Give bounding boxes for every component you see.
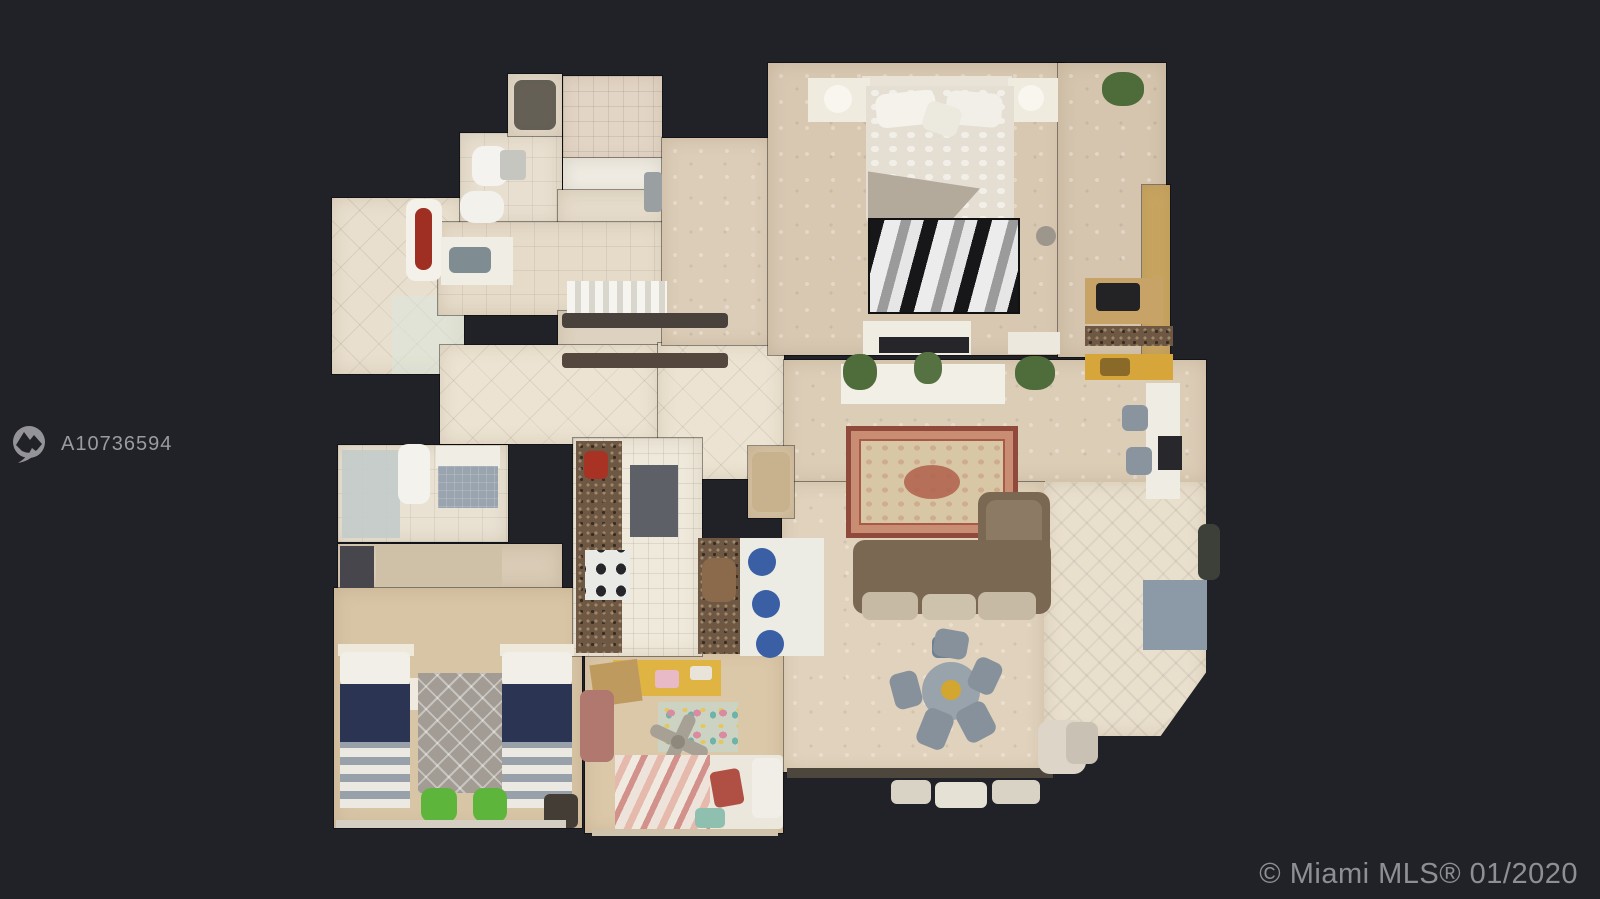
- entry-plant-1: [843, 354, 877, 390]
- kids2-pillow-white: [752, 758, 782, 818]
- kids2-pillow-red: [709, 768, 745, 809]
- kids-green-chair-2: [473, 788, 507, 822]
- office-chair-2: [1126, 447, 1152, 475]
- listing-id-text: A10736594: [61, 433, 172, 456]
- china-dish-2: [752, 590, 780, 618]
- kids2-pillow-teal: [695, 808, 725, 828]
- kids-trellis-rug: [418, 673, 502, 793]
- nook-items: [752, 452, 790, 512]
- ceiling-fan-hub: [671, 735, 685, 749]
- bath2-mat: [438, 466, 498, 508]
- decor-stone: [1036, 226, 1056, 246]
- closet-clothes-bottom: [562, 353, 728, 368]
- mirror-dark-blob: [514, 80, 556, 130]
- master-dresser: [1008, 332, 1060, 354]
- entry-plant-2: [914, 352, 942, 384]
- bathtub-red-towel: [415, 208, 432, 270]
- bidet: [460, 191, 504, 223]
- bath2-shower-glass: [342, 450, 400, 538]
- master-lamp-left: [824, 85, 852, 113]
- bath2-vanity: [436, 446, 500, 468]
- mls-logo-icon: [10, 424, 48, 464]
- watermark: A10736594: [10, 424, 172, 464]
- balcony-item-3: [992, 780, 1040, 804]
- hall2-dark-dresser: [340, 546, 374, 588]
- kids-bed-right-pillow: [502, 652, 572, 686]
- closet-striped-mat: [567, 281, 667, 313]
- copyright-text: © Miami MLS® 01/2020: [1259, 858, 1578, 891]
- sofa-cushion-1: [862, 592, 918, 620]
- kitchen-stool: [702, 558, 736, 602]
- kitchen-mat: [630, 465, 678, 537]
- vanity-items: [449, 247, 491, 273]
- office-chair-1: [1122, 405, 1148, 431]
- floorplan-dollhouse-view: [0, 0, 1600, 899]
- china-dish-1: [748, 548, 776, 576]
- kids-bed-left-stripes: [340, 742, 410, 808]
- china-dish-3: [756, 630, 784, 658]
- master-tv: [879, 337, 969, 353]
- kids2-desk-paper: [655, 670, 679, 688]
- toilet-mat: [500, 150, 526, 180]
- shower-fixture: [644, 172, 662, 212]
- kids2-ledge: [592, 830, 778, 836]
- kitchen-stove: [585, 550, 630, 600]
- floor-shower-tiled: [563, 76, 662, 162]
- balcony-item-2: [935, 782, 987, 808]
- kids-green-chair-1: [421, 788, 457, 822]
- balcony-wall: [787, 768, 1053, 778]
- closet-clothes-top: [562, 313, 728, 328]
- kids-room-ledge: [336, 820, 566, 828]
- sofa-cushion-2: [922, 594, 976, 620]
- sewing-machine: [1096, 283, 1140, 311]
- dining-chair-1: [932, 627, 970, 660]
- kids-bed-right-navy: [502, 684, 572, 744]
- kids2-desk-item: [690, 666, 712, 680]
- balcony-item-4: [1066, 722, 1098, 764]
- dining-centerpiece: [941, 680, 961, 700]
- kids2-mauve-chair: [580, 690, 614, 762]
- kids-bed-left-pillow: [340, 652, 410, 686]
- balcony-door-mat: [1143, 580, 1207, 650]
- sofa-cushion-3: [978, 592, 1036, 620]
- hall2-credenza: [376, 546, 502, 586]
- gold-closet-items: [1100, 358, 1130, 376]
- granite-ledge-master: [1085, 326, 1173, 346]
- edge-plant: [1198, 524, 1220, 580]
- mls-photo-canvas: A10736594 © Miami MLS® 01/2020: [0, 0, 1600, 899]
- balcony-item-1: [891, 780, 931, 804]
- master-rug-bw: [870, 220, 1018, 312]
- master-lamp-right: [1018, 85, 1044, 111]
- kitchen-kettle: [584, 451, 608, 479]
- office-tv: [1158, 436, 1182, 470]
- bath2-toilet: [398, 444, 430, 504]
- entry-plant-3: [1015, 356, 1055, 390]
- master-plant: [1102, 72, 1144, 106]
- kids-bed-left-navy: [340, 684, 410, 744]
